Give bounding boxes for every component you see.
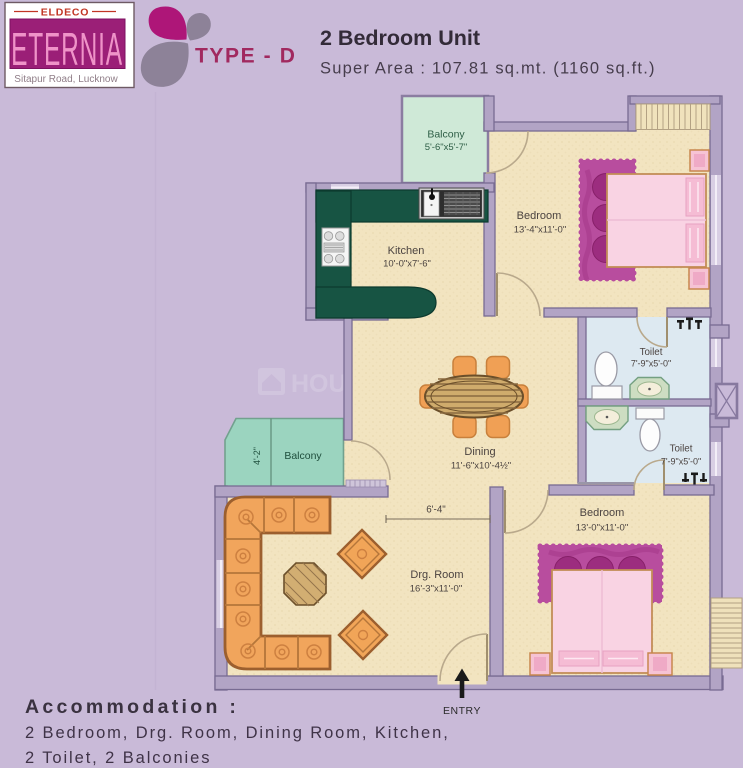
svg-text:7'-9"x5'-0": 7'-9"x5'-0" bbox=[631, 359, 671, 369]
svg-text:TYPE - D: TYPE - D bbox=[195, 45, 296, 68]
svg-text:Dining: Dining bbox=[464, 446, 495, 458]
svg-text:Drg. Room: Drg. Room bbox=[410, 569, 463, 581]
svg-text:13'-0"x11'-0": 13'-0"x11'-0" bbox=[576, 523, 628, 534]
svg-text:16'-3"x11'-0": 16'-3"x11'-0" bbox=[410, 584, 462, 595]
svg-text:Bedroom: Bedroom bbox=[580, 507, 625, 519]
svg-text:Balcony: Balcony bbox=[427, 129, 465, 141]
svg-text:10'-0"x7'-6": 10'-0"x7'-6" bbox=[383, 259, 431, 270]
svg-text:5'-6"x5'-7": 5'-6"x5'-7" bbox=[425, 142, 468, 153]
svg-text:Super Area : 107.81 sq.mt. (11: Super Area : 107.81 sq.mt. (1160 sq.ft.) bbox=[320, 60, 656, 78]
svg-text:11'-6"x10'-4½": 11'-6"x10'-4½" bbox=[451, 461, 511, 472]
svg-text:2 Bedroom Unit: 2 Bedroom Unit bbox=[320, 26, 480, 50]
svg-text:Accommodation :: Accommodation : bbox=[25, 696, 239, 718]
svg-text:ELDECO: ELDECO bbox=[41, 7, 90, 19]
svg-text:Sitapur Road, Lucknow: Sitapur Road, Lucknow bbox=[14, 74, 118, 85]
svg-text:Toilet: Toilet bbox=[670, 444, 693, 455]
svg-text:2 Bedroom, Drg. Room, Dining R: 2 Bedroom, Drg. Room, Dining Room, Kitch… bbox=[25, 724, 450, 742]
svg-text:Balcony: Balcony bbox=[284, 450, 322, 462]
svg-text:Toilet: Toilet bbox=[640, 347, 663, 358]
svg-text:ENTRY: ENTRY bbox=[443, 705, 481, 717]
svg-text:2 Toilet, 2 Balconies: 2 Toilet, 2 Balconies bbox=[25, 749, 211, 767]
svg-text:13'-4"x11'-0": 13'-4"x11'-0" bbox=[514, 225, 566, 236]
svg-text:6'-4": 6'-4" bbox=[426, 505, 446, 516]
svg-text:ETERNIA: ETERNIA bbox=[11, 22, 123, 75]
svg-text:Kitchen: Kitchen bbox=[388, 245, 425, 257]
svg-text:Bedroom: Bedroom bbox=[517, 210, 562, 222]
svg-text:4'-2": 4'-2" bbox=[252, 447, 262, 465]
svg-text:7'-9"x5'-0": 7'-9"x5'-0" bbox=[661, 457, 701, 467]
